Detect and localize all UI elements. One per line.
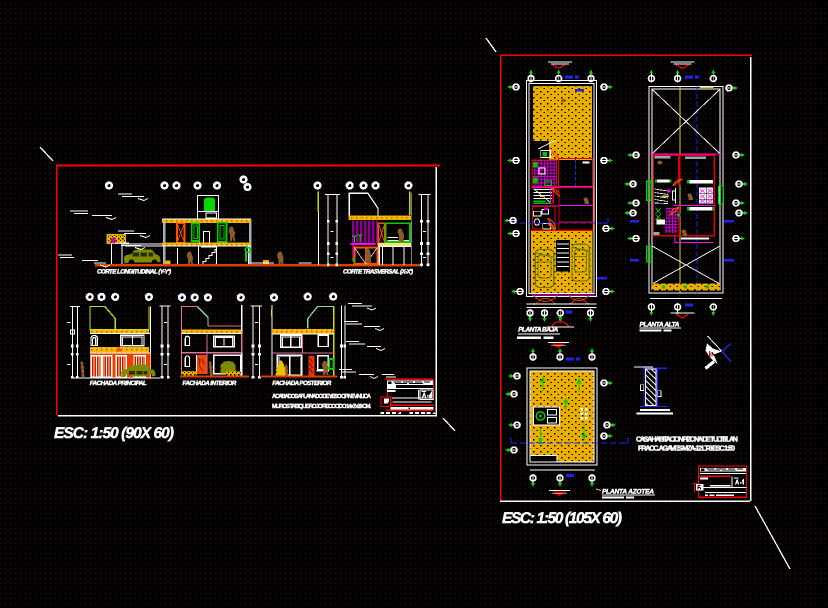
svg-text:FACHADA POSTERIOR: FACHADA POSTERIOR [272,380,332,387]
svg-text:PLANTA BAJA: PLANTA BAJA [518,327,558,334]
svg-text:MUROS TABIQUE ROJO RECOCIDO 1: MUROS TABIQUE ROJO RECOCIDO 14x7x28 CM. [272,403,371,410]
svg-text:ESC: 1:50 (105X 60): ESC: 1:50 (105X 60) [502,510,622,527]
svg-text:PLANTA AZOTEA: PLANTA AZOTEA [602,489,654,496]
svg-text:CORTE TRASVERSAL (X-X'): CORTE TRASVERSAL (X-X') [343,269,413,276]
svg-text:FACHADA INTERIOR: FACHADA INTERIOR [182,380,237,387]
svg-text:CORTE LONGITUDINAL (Y-Y'): CORTE LONGITUDINAL (Y-Y') [97,269,171,276]
svg-text:ESC: 1:50 (90X 60): ESC: 1:50 (90X 60) [54,425,174,442]
svg-text:PLANTA ALTA: PLANTA ALTA [640,322,680,329]
svg-text:CASA HABITACION P/ZONA DE TULT: CASA HABITACION P/ZONA DE TULTITLAN [636,435,738,444]
svg-text:ACABADOS APLANADO DE YESO C/P: ACABADOS APLANADO DE YESO C/PINT. VINILI… [272,393,372,400]
svg-text:FRACC. AGAVES MZA-12 LT-8 E: FRACC. AGAVES MZA-12 LT-8 ESC 1:50 [638,444,735,453]
svg-text:FACHADA PRINCIPAL: FACHADA PRINCIPAL [90,380,147,387]
